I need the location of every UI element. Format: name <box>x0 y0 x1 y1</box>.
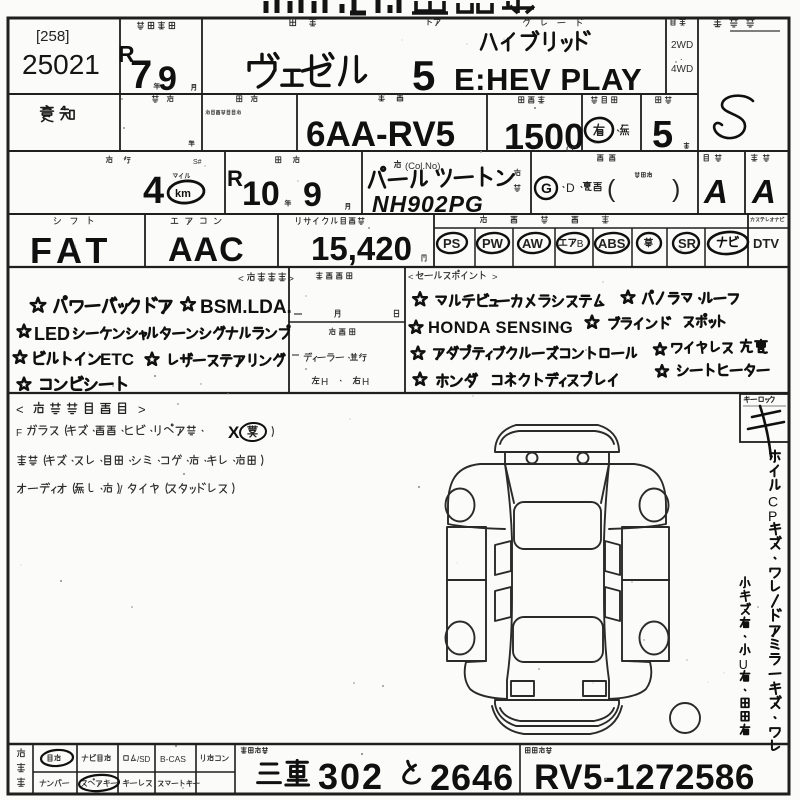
svg-text:): ) <box>672 175 680 203</box>
svg-text:AW: AW <box>522 236 544 251</box>
svg-text:U: U <box>739 658 748 672</box>
svg-text:A: A <box>751 173 776 210</box>
svg-text:B-CAS: B-CAS <box>160 754 186 764</box>
svg-text:HONDA SENSING: HONDA SENSING <box>428 319 573 337</box>
svg-text:H: H <box>321 377 328 388</box>
svg-text:B: B <box>577 239 584 250</box>
svg-text:AAC: AAC <box>168 231 245 269</box>
svg-text:PW: PW <box>482 236 504 251</box>
svg-text:6AA-RV5: 6AA-RV5 <box>306 115 455 154</box>
svg-text:5: 5 <box>652 114 673 156</box>
svg-text:R: R <box>227 166 243 191</box>
svg-text:X: X <box>228 423 240 442</box>
svg-text:/SD: /SD <box>137 755 151 764</box>
svg-text:5: 5 <box>412 52 435 99</box>
svg-text:D: D <box>566 181 575 195</box>
svg-text:<: < <box>16 402 24 417</box>
svg-text:P: P <box>768 508 777 524</box>
svg-text:4WD: 4WD <box>671 64 693 75</box>
svg-text:25021: 25021 <box>22 49 100 80</box>
svg-text:/: / <box>119 485 123 497</box>
svg-text:>: > <box>492 272 498 283</box>
svg-text:G: G <box>541 180 552 196</box>
svg-text:>: > <box>138 402 146 417</box>
svg-text:F: F <box>16 428 22 439</box>
svg-text:BSM.LDA.: BSM.LDA. <box>200 297 292 318</box>
svg-text:E:HEV PLAY: E:HEV PLAY <box>454 62 642 97</box>
svg-text:km: km <box>175 188 191 200</box>
svg-text:FAT: FAT <box>30 230 113 271</box>
svg-text:PS: PS <box>443 236 461 251</box>
svg-text:7: 7 <box>130 53 152 97</box>
svg-text:302: 302 <box>318 756 384 797</box>
svg-text:SR: SR <box>678 236 697 251</box>
svg-text:NH902PG: NH902PG <box>372 191 484 217</box>
svg-text:RV5-1272586: RV5-1272586 <box>534 758 755 797</box>
svg-text:<: < <box>238 274 244 285</box>
svg-text:cc: cc <box>566 143 578 155</box>
svg-text:.: . <box>680 52 683 62</box>
svg-text:LED: LED <box>34 324 70 344</box>
svg-text:2646: 2646 <box>430 757 514 798</box>
svg-text:ETC: ETC <box>100 350 134 369</box>
svg-text:(: ( <box>607 175 616 203</box>
svg-text:S#: S# <box>193 159 202 166</box>
svg-text:DTV: DTV <box>753 236 779 251</box>
svg-text:<: < <box>408 272 414 283</box>
svg-text:15,420: 15,420 <box>311 230 412 267</box>
svg-text:9: 9 <box>303 176 322 214</box>
svg-text:>: > <box>288 274 294 285</box>
svg-text:10: 10 <box>242 175 280 213</box>
svg-text:9: 9 <box>158 60 177 98</box>
svg-text:4: 4 <box>143 170 164 212</box>
svg-text:ABS: ABS <box>598 236 626 251</box>
svg-text:A: A <box>703 173 728 210</box>
svg-text:2WD: 2WD <box>671 40 693 51</box>
svg-text:H: H <box>362 377 369 388</box>
